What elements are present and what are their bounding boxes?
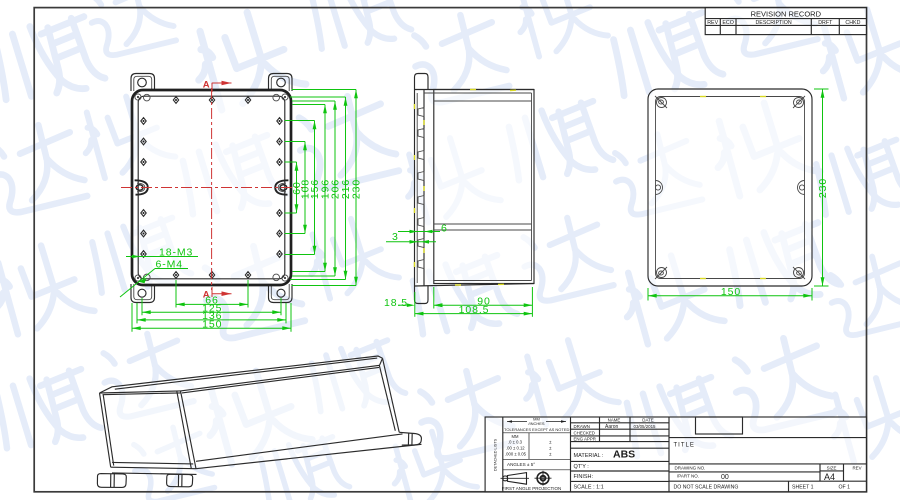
svg-text:TITLE: TITLE — [674, 443, 695, 449]
svg-text:A4: A4 — [824, 472, 835, 482]
svg-text:DRAWING NO.: DRAWING NO. — [675, 466, 706, 471]
svg-text:DATE: DATE — [642, 418, 653, 423]
svg-text:A: A — [203, 80, 210, 91]
svg-text:.0 ± 0.3: .0 ± 0.3 — [508, 440, 523, 445]
svg-text:REVISION RECORD: REVISION RECORD — [751, 9, 822, 18]
svg-text:NAME: NAME — [608, 418, 621, 423]
svg-text:OF 1: OF 1 — [839, 484, 851, 490]
svg-text:6: 6 — [441, 223, 448, 235]
svg-text:SIZE: SIZE — [827, 465, 837, 470]
svg-text:3: 3 — [392, 231, 399, 243]
svg-text:TOLERANCES EXCEPT AS NOTED: TOLERANCES EXCEPT AS NOTED — [504, 427, 570, 432]
svg-text:DO NOT SCALE DRAWING: DO NOT SCALE DRAWING — [674, 484, 739, 490]
svg-text:00: 00 — [721, 474, 729, 481]
svg-text:REV: REV — [852, 465, 861, 470]
svg-text:/PART NO.: /PART NO. — [677, 473, 699, 478]
svg-text:Aaron: Aaron — [605, 424, 619, 430]
svg-text:230: 230 — [350, 179, 362, 199]
svg-text:DESCRIPTION: DESCRIPTION — [755, 20, 791, 26]
svg-text:18-M3: 18-M3 — [159, 246, 193, 258]
svg-text:CHKD: CHKD — [845, 20, 860, 26]
svg-text:MATERIAL :: MATERIAL : — [574, 453, 604, 459]
svg-text:/INCHES: /INCHES — [528, 421, 545, 426]
svg-text:DRFT: DRFT — [818, 20, 833, 26]
svg-text:ECO: ECO — [722, 20, 733, 26]
svg-text:ABS: ABS — [613, 449, 635, 461]
svg-text:18.5: 18.5 — [384, 297, 408, 309]
svg-text:CHECKED: CHECKED — [574, 431, 595, 436]
svg-text:SHEET 1: SHEET 1 — [792, 484, 814, 490]
svg-text:230: 230 — [817, 178, 829, 198]
svg-text:150: 150 — [721, 286, 741, 298]
svg-text:SCALE : 1:1: SCALE : 1:1 — [574, 485, 604, 491]
svg-text:DETACHED LISTS: DETACHED LISTS — [494, 438, 498, 471]
svg-text:6-M4: 6-M4 — [156, 258, 184, 270]
svg-text:ENG APPR: ENG APPR — [574, 437, 596, 442]
svg-text:DRAWN: DRAWN — [574, 424, 590, 429]
svg-text:03/05/2015: 03/05/2015 — [634, 424, 657, 429]
svg-text:108.5: 108.5 — [459, 304, 490, 316]
svg-text:MM: MM — [512, 434, 519, 439]
svg-text:QT'Y :: QT'Y : — [574, 464, 590, 470]
svg-text:ANGLES ± 5°: ANGLES ± 5° — [507, 462, 535, 467]
svg-text:.000 ± 0.05: .000 ± 0.05 — [505, 452, 527, 457]
svg-text:REV: REV — [707, 20, 718, 26]
svg-text:.00 ± 0.12: .00 ± 0.12 — [506, 446, 525, 451]
svg-text:FIRST ANGLE PROJECTION: FIRST ANGLE PROJECTION — [502, 486, 561, 491]
svg-text:150: 150 — [202, 318, 222, 330]
svg-text:FINISH:: FINISH: — [574, 474, 594, 480]
